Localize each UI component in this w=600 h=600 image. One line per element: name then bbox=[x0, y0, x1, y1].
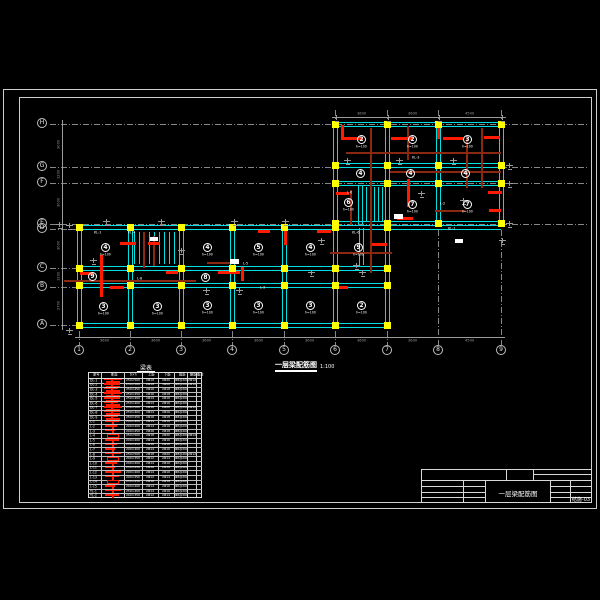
schedule-cell: 250×500 bbox=[126, 434, 140, 437]
axis-bubble-row: C bbox=[37, 262, 47, 272]
rebar-mark bbox=[372, 243, 387, 246]
slab-number: 9 bbox=[88, 272, 97, 281]
rebar-annotation bbox=[231, 219, 239, 226]
slab-number: 3 bbox=[153, 302, 162, 311]
stair-line bbox=[358, 186, 359, 224]
schedule-cell: Φ8@200 bbox=[175, 388, 188, 391]
schedule-section-sketch bbox=[104, 379, 122, 381]
schedule-beam-name: L-9 bbox=[90, 457, 95, 460]
column bbox=[127, 265, 134, 272]
schedule-cell: Φ8@200 bbox=[175, 453, 188, 456]
rebar-annotation bbox=[333, 115, 341, 122]
slab-number: 3 bbox=[99, 302, 108, 311]
schedule-cell: 2Φ18 bbox=[162, 430, 170, 433]
schedule-cell: 2Φ14 bbox=[146, 485, 154, 488]
slab-subtext: h=100 bbox=[462, 210, 473, 213]
column bbox=[384, 162, 391, 169]
axis-bubble-row: F bbox=[37, 177, 47, 187]
schedule-beam-name: L-3 bbox=[90, 430, 95, 433]
title-block-line bbox=[533, 469, 534, 480]
slab-number: 3 bbox=[203, 301, 212, 310]
schedule-cell: 2Φ16 bbox=[146, 480, 154, 483]
schedule-cell: 200×400 bbox=[126, 485, 140, 488]
schedule-beam-name: DL-5 bbox=[90, 397, 97, 400]
schedule-cell: 200×400 bbox=[126, 439, 140, 442]
schedule-cell: 2Φ14 bbox=[162, 476, 170, 479]
stair-line bbox=[374, 187, 375, 222]
dimension-value: 1200 bbox=[57, 272, 61, 281]
column bbox=[498, 162, 505, 169]
column bbox=[281, 322, 288, 329]
schedule-cell: 250×450 bbox=[126, 443, 140, 446]
schedule-cell: Φ6@200 bbox=[175, 476, 188, 479]
column bbox=[332, 282, 339, 289]
stair-line bbox=[159, 232, 160, 264]
slab-subtext: h=100 bbox=[356, 145, 367, 148]
slab-number: 6 bbox=[344, 198, 353, 207]
schedule-beam-name: DL-2 bbox=[90, 383, 97, 386]
schedule-cell: 2Φ16 bbox=[162, 411, 170, 414]
column bbox=[281, 265, 288, 272]
schedule-cell: 2Φ14 bbox=[146, 471, 154, 474]
rebar-annotation bbox=[506, 181, 514, 188]
schedule-cell: 250×500 bbox=[126, 379, 140, 382]
stair-line bbox=[164, 232, 165, 264]
schedule-cell: 2Φ20 bbox=[162, 434, 170, 437]
rebar-mark bbox=[341, 125, 344, 139]
schedule-beam-name: L-2 bbox=[90, 425, 95, 428]
axis-bubble-row: A bbox=[37, 319, 47, 329]
schedule-section-sketch bbox=[111, 417, 113, 418]
schedule-cell: 2Φ12 bbox=[188, 383, 196, 386]
schedule-cell: 2Φ12 bbox=[188, 453, 196, 456]
schedule-section-sketch bbox=[111, 389, 113, 390]
schedule-cell: 200×350 bbox=[126, 457, 140, 460]
slab-subtext: h=100 bbox=[356, 311, 367, 314]
schedule-cell: Φ6@200 bbox=[175, 485, 188, 488]
schedule-beam-name: DL-9 bbox=[90, 416, 97, 419]
schedule-cell: Φ8@200 bbox=[175, 416, 188, 419]
schedule-cell: 2Φ14 bbox=[146, 462, 154, 465]
rebar-annotation bbox=[158, 219, 166, 226]
schedule-cell: 2Φ14 bbox=[162, 457, 170, 460]
axis-bubble-row: H bbox=[37, 118, 47, 128]
beam-label: KL-3 bbox=[412, 156, 419, 159]
schedule-beam-name: L-15 bbox=[90, 485, 97, 488]
axis-bubble-row: G bbox=[37, 161, 47, 171]
schedule-beam-name: DL-3 bbox=[90, 388, 97, 391]
floor-plan: HGFEDCBA12345678936003600360036003600360… bbox=[0, 0, 600, 600]
schedule-cell: 2Φ16 bbox=[146, 416, 154, 419]
slab-subtext: h=100 bbox=[353, 253, 364, 256]
schedule-beam-name: L-12 bbox=[90, 471, 97, 474]
slab-number: 8 bbox=[201, 273, 210, 282]
rebar-mark bbox=[120, 242, 136, 245]
axis-bubble-column: 9 bbox=[496, 345, 506, 355]
rebar-mark bbox=[489, 209, 501, 212]
column bbox=[384, 282, 391, 289]
schedule-beam-name: L-4 bbox=[90, 434, 95, 437]
title-block-line bbox=[421, 480, 592, 481]
rebar-annotation bbox=[450, 158, 458, 165]
schedule-cell: 2Φ12 bbox=[146, 457, 154, 460]
slab-subtext: h=100 bbox=[202, 253, 213, 256]
column bbox=[435, 180, 442, 187]
schedule-cell: Φ6@200 bbox=[175, 411, 188, 414]
schedule-cell: Φ8@200 bbox=[175, 434, 188, 437]
stair-line bbox=[362, 186, 363, 224]
schedule-section-sketch bbox=[111, 408, 113, 409]
column bbox=[178, 224, 185, 231]
schedule-cell: 2Φ14 bbox=[146, 420, 154, 423]
stair-line bbox=[363, 228, 364, 265]
schedule-header-cell: 备注 bbox=[197, 373, 203, 376]
schedule-header-cell: 箍筋 bbox=[179, 373, 185, 376]
column bbox=[435, 162, 442, 169]
title-block-line bbox=[533, 474, 592, 475]
schedule-cell: 2Φ20 bbox=[162, 453, 170, 456]
schedule-cell: 200×400 bbox=[126, 448, 140, 451]
slab-subtext: h=100 bbox=[462, 145, 473, 148]
slab-number: 2 bbox=[408, 135, 417, 144]
axis-bubble-column: 5 bbox=[279, 345, 289, 355]
rebar-annotation bbox=[66, 328, 74, 335]
schedule-cell: 2Φ18 bbox=[162, 393, 170, 396]
rebar-annotation bbox=[318, 238, 326, 245]
schedule-beam-name: L-13 bbox=[90, 476, 97, 479]
axis-extension-line bbox=[284, 331, 285, 345]
rebar-annotation bbox=[506, 163, 514, 170]
rebar-mark bbox=[284, 231, 287, 245]
stair-line bbox=[169, 232, 170, 264]
dimension-line-bottom bbox=[75, 337, 505, 338]
schedule-cell: 2Φ14 bbox=[146, 402, 154, 405]
schedule-cell: 2Φ18 bbox=[146, 383, 154, 386]
slab-number: 4 bbox=[461, 169, 470, 178]
rebar-annotation bbox=[359, 270, 367, 277]
schedule-header-cell: 下筋 bbox=[164, 373, 170, 376]
schedule-cell: 250×450 bbox=[126, 393, 140, 396]
stair-line bbox=[378, 187, 379, 222]
slab-number: 2 bbox=[357, 135, 366, 144]
schedule-beam-name: L-7 bbox=[90, 448, 95, 451]
schedule-cell: 200×450 bbox=[126, 430, 140, 433]
schedule-cell: 250×450 bbox=[126, 388, 140, 391]
title-block-line bbox=[506, 469, 507, 480]
schedule-cell: 2Φ14 bbox=[146, 411, 154, 414]
drawing-sheet: HGFEDCBA12345678936003600360036003600360… bbox=[0, 0, 600, 600]
schedule-cell: Φ6@200 bbox=[175, 420, 188, 423]
schedule-cell: 2Φ16 bbox=[162, 462, 170, 465]
schedule-cell: Φ8@200 bbox=[175, 393, 188, 396]
schedule-cell: 250×400 bbox=[126, 490, 140, 493]
column bbox=[384, 121, 391, 128]
slab-number: 4 bbox=[306, 243, 315, 252]
slab-subtext: h=100 bbox=[407, 210, 418, 213]
column bbox=[384, 180, 391, 187]
rebar-annotation bbox=[436, 115, 444, 122]
beam-vertical bbox=[179, 227, 184, 325]
rebar-mark bbox=[488, 191, 502, 194]
schedule-cell: 200×350 bbox=[126, 494, 140, 497]
schedule-cell: 2Φ18 bbox=[162, 443, 170, 446]
column bbox=[178, 282, 185, 289]
column bbox=[76, 282, 83, 289]
axis-bubble-column: 7 bbox=[382, 345, 392, 355]
column bbox=[332, 265, 339, 272]
schedule-section-sketch bbox=[105, 425, 117, 427]
column bbox=[435, 121, 442, 128]
column bbox=[332, 162, 339, 169]
rebar-annotation bbox=[56, 222, 64, 229]
schedule-cell: Φ6@200 bbox=[175, 425, 188, 428]
column bbox=[498, 180, 505, 187]
slab-number: 3 bbox=[306, 301, 315, 310]
stair-line bbox=[139, 232, 140, 264]
slab-number: 7 bbox=[408, 200, 417, 209]
schedule-cell: 2Φ16 bbox=[162, 471, 170, 474]
schedule-section-sketch bbox=[105, 444, 117, 446]
column bbox=[384, 322, 391, 329]
schedule-header-cell: 上筋 bbox=[148, 373, 154, 376]
schedule-cell: 2Φ16 bbox=[146, 430, 154, 433]
schedule-cell: 250×450 bbox=[126, 480, 140, 483]
schedule-section-sketch bbox=[111, 394, 113, 395]
schedule-cell: Φ6@200 bbox=[175, 439, 188, 442]
title-block-line bbox=[421, 497, 485, 498]
schedule-cell: 200×400 bbox=[126, 462, 140, 465]
schedule-beam-name: TL-2 bbox=[90, 494, 97, 497]
axis-extension-line bbox=[335, 331, 336, 345]
stair-line bbox=[366, 187, 367, 222]
column bbox=[178, 322, 185, 329]
column bbox=[76, 224, 83, 231]
schedule-cell: 2Φ14 bbox=[146, 397, 154, 400]
slab-subtext: h=100 bbox=[253, 311, 264, 314]
axis-extension-line bbox=[387, 331, 388, 345]
dimension-value: 4500 bbox=[465, 112, 474, 116]
section-symbol bbox=[150, 237, 158, 241]
schedule-cell: 2Φ14 bbox=[146, 439, 154, 442]
schedule-cell: Φ8@200 bbox=[175, 480, 188, 483]
slab-number: 3 bbox=[254, 301, 263, 310]
beam-vertical bbox=[77, 227, 82, 325]
stair-line bbox=[134, 232, 135, 264]
dimension-value: 1200 bbox=[57, 170, 61, 179]
axis-extension-line bbox=[181, 331, 182, 345]
dimension-value: 3600 bbox=[254, 339, 263, 343]
schedule-cell: 2Φ18 bbox=[146, 434, 154, 437]
rebar-annotation bbox=[506, 221, 514, 228]
axis-extension-line bbox=[501, 230, 502, 345]
rebar-mark bbox=[166, 271, 178, 274]
rebar-annotation bbox=[90, 258, 98, 265]
beam-label: KL-4 bbox=[128, 231, 135, 234]
dimension-value: 3600 bbox=[408, 112, 417, 116]
schedule-cell: 250×450 bbox=[126, 416, 140, 419]
axis-bubble-column: 2 bbox=[125, 345, 135, 355]
schedule-cell: 200×400 bbox=[126, 425, 140, 428]
schedule-cell: 2Φ14 bbox=[146, 448, 154, 451]
schedule-cell: Φ8@200 bbox=[175, 430, 188, 433]
slab-subtext: h=100 bbox=[202, 311, 213, 314]
title-block-line bbox=[550, 486, 592, 487]
section-symbol bbox=[230, 259, 239, 264]
schedule-cell: 250×400 bbox=[126, 411, 140, 414]
axis-extension-line bbox=[232, 331, 233, 345]
schedule-cell: 2Φ16 bbox=[162, 439, 170, 442]
schedule-cell: 2Φ18 bbox=[162, 388, 170, 391]
rebar-mark bbox=[110, 286, 124, 289]
schedule-section-sketch bbox=[112, 496, 114, 498]
beam-horizontal bbox=[335, 163, 501, 168]
schedule-cell: Φ6@200 bbox=[175, 490, 188, 493]
slab-subtext: h=100 bbox=[305, 253, 316, 256]
slab-subtext: h=100 bbox=[152, 312, 163, 315]
column bbox=[229, 322, 236, 329]
dimension-value: 3000 bbox=[57, 198, 61, 207]
column bbox=[384, 224, 391, 231]
schedule-cell: Φ8@200 bbox=[175, 383, 188, 386]
schedule-cell: 250×400 bbox=[126, 402, 140, 405]
axis-line-horizontal bbox=[50, 124, 588, 125]
dimension-value: 3600 bbox=[357, 339, 366, 343]
rebar-annotation bbox=[396, 158, 404, 165]
slab-subtext: h=100 bbox=[100, 253, 111, 256]
rebar-annotation bbox=[499, 115, 507, 122]
beam-label: L-5 bbox=[243, 262, 248, 265]
schedule-beam-name: TL-1 bbox=[90, 490, 97, 493]
schedule-section-sketch bbox=[111, 412, 113, 413]
rebar-annotation bbox=[353, 263, 361, 270]
schedule-title-underline bbox=[137, 371, 155, 372]
schedule-cell: 2Φ14 bbox=[146, 425, 154, 428]
rebar-annotation bbox=[236, 288, 244, 295]
schedule-section-sketch bbox=[104, 392, 122, 394]
column bbox=[435, 220, 442, 227]
slab-number: 4 bbox=[406, 169, 415, 178]
column bbox=[498, 121, 505, 128]
schedule-cell: 200×400 bbox=[126, 420, 140, 423]
slab-subtext: h=100 bbox=[305, 311, 316, 314]
schedule-cell: Φ6@200 bbox=[175, 494, 188, 497]
schedule-cell: 250×400 bbox=[126, 397, 140, 400]
dimension-value: 4500 bbox=[465, 339, 474, 343]
column bbox=[332, 322, 339, 329]
column bbox=[127, 322, 134, 329]
title-block-line bbox=[550, 492, 592, 493]
axis-bubble-row: D bbox=[37, 223, 47, 233]
dimension-value: 3600 bbox=[151, 339, 160, 343]
stair-line bbox=[174, 232, 175, 264]
schedule-cell: 2Φ12 bbox=[188, 379, 196, 382]
schedule-section-sketch bbox=[111, 380, 113, 381]
schedule-section-sketch bbox=[111, 398, 113, 399]
schedule-beam-name: L-1 bbox=[90, 420, 95, 423]
slab-number: 5 bbox=[254, 243, 263, 252]
schedule-cell: 2Φ16 bbox=[162, 448, 170, 451]
rebar-annotation bbox=[282, 219, 290, 226]
title-block-drawing-name: 一层梁配筋图 bbox=[486, 484, 550, 502]
rebar-annotation bbox=[308, 270, 316, 277]
schedule-section-sketch bbox=[105, 462, 117, 464]
schedule-header-cell: 断面 bbox=[111, 373, 117, 376]
column bbox=[229, 265, 236, 272]
schedule-section-sketch bbox=[111, 403, 113, 404]
slab-number: 3 bbox=[463, 135, 472, 144]
plan-title-underline bbox=[275, 370, 317, 372]
dimension-value: 3600 bbox=[357, 112, 366, 116]
rebar-mark bbox=[317, 230, 331, 233]
column bbox=[76, 322, 83, 329]
slab-number: 4 bbox=[203, 243, 212, 252]
rebar-mark bbox=[443, 137, 463, 140]
schedule-cell: 2Φ16 bbox=[162, 420, 170, 423]
schedule-beam-name: L-8 bbox=[90, 453, 95, 456]
schedule-beam-name: L-14 bbox=[90, 480, 97, 483]
beam-label: L-2 bbox=[440, 202, 445, 205]
rebar-mark bbox=[148, 242, 160, 245]
schedule-cell: Φ6@200 bbox=[175, 402, 188, 405]
schedule-cell: 3Φ20 bbox=[162, 383, 170, 386]
column bbox=[281, 282, 288, 289]
axis-extension-line bbox=[130, 331, 131, 345]
slab-number: 4 bbox=[101, 243, 110, 252]
dimension-value: 2700 bbox=[57, 301, 61, 310]
schedule-beam-name: DL-8 bbox=[90, 411, 97, 414]
stair-line bbox=[382, 187, 383, 222]
schedule-cell: 2Φ18 bbox=[146, 453, 154, 456]
beam-horizontal bbox=[335, 122, 501, 127]
schedule-beam-name: DL-4 bbox=[90, 393, 97, 396]
schedule-section-sketch bbox=[111, 385, 113, 386]
secondary-beam bbox=[481, 128, 483, 188]
schedule-cell: Φ6@200 bbox=[175, 397, 188, 400]
schedule-cell: 2Φ16 bbox=[162, 397, 170, 400]
rebar-annotation bbox=[103, 219, 111, 226]
schedule-section-sketch bbox=[104, 406, 122, 408]
slab-subtext: h=100 bbox=[407, 145, 418, 148]
schedule-cell: 2Φ14 bbox=[162, 494, 170, 497]
schedule-cell: 2Φ16 bbox=[146, 393, 154, 396]
title-block-drawing-number: 结施-03 bbox=[570, 496, 592, 503]
schedule-cell: Φ6@200 bbox=[175, 448, 188, 451]
title-block-line bbox=[421, 486, 485, 487]
schedule-header-cell: b×h bbox=[130, 373, 137, 376]
schedule-cell: Φ8@200 bbox=[175, 379, 188, 382]
dimension-value: 3000 bbox=[57, 241, 61, 250]
slab-number: 2 bbox=[357, 301, 366, 310]
column bbox=[384, 265, 391, 272]
schedule-cell: 2Φ18 bbox=[146, 379, 154, 382]
column bbox=[332, 121, 339, 128]
schedule-beam-name: L-6 bbox=[90, 443, 95, 446]
axis-extension-line bbox=[438, 230, 439, 345]
beam-label: L-8 bbox=[137, 277, 142, 280]
schedule-cell: 2Φ16 bbox=[162, 425, 170, 428]
schedule-cell: Φ6@200 bbox=[175, 471, 188, 474]
beam-label: KL-6 bbox=[352, 231, 359, 234]
schedule-cell: 2Φ16 bbox=[162, 485, 170, 488]
slab-subtext: h=100 bbox=[343, 208, 354, 211]
rebar-annotation bbox=[203, 288, 211, 295]
column bbox=[498, 220, 505, 227]
secondary-beam bbox=[143, 232, 145, 268]
beam-label: L-6 bbox=[347, 191, 352, 194]
beam-label: KL-1 bbox=[94, 231, 101, 234]
schedule-cell: 2Φ16 bbox=[162, 490, 170, 493]
rebar-annotation bbox=[418, 191, 426, 198]
